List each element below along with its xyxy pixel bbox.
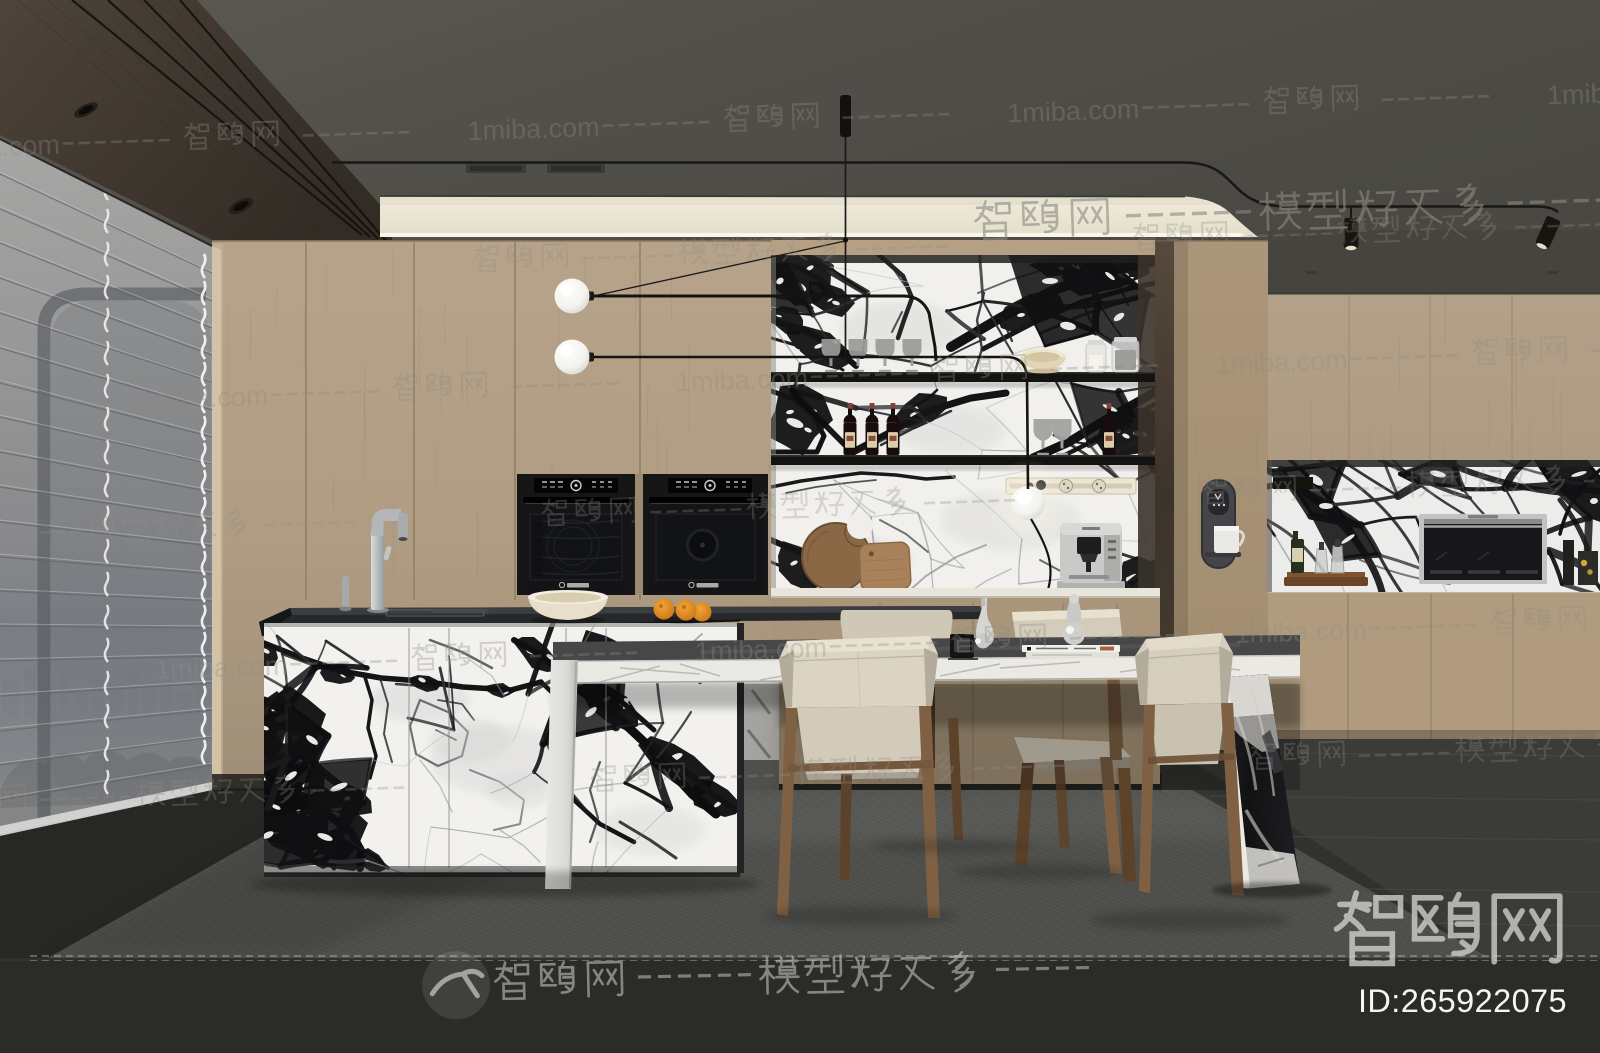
svg-text:1miba.com: 1miba.com (1007, 94, 1140, 128)
svg-text:1miba.com: 1miba.com (694, 633, 827, 667)
svg-text:1miba.com: 1miba.com (0, 130, 60, 164)
svg-text:1miba.com: 1miba.com (1215, 345, 1348, 379)
svg-text:ID:265922075: ID:265922075 (1358, 983, 1567, 1019)
svg-text:1miba.com: 1miba.com (676, 363, 809, 397)
svg-text:1miba.com: 1miba.com (467, 112, 600, 146)
svg-text:1miba.com: 1miba.com (1234, 615, 1367, 649)
svg-text:1miba.com: 1miba.com (136, 381, 269, 415)
svg-text:1miba.com: 1miba.com (1547, 76, 1600, 110)
svg-text:1miba.com: 1miba.com (155, 651, 288, 685)
